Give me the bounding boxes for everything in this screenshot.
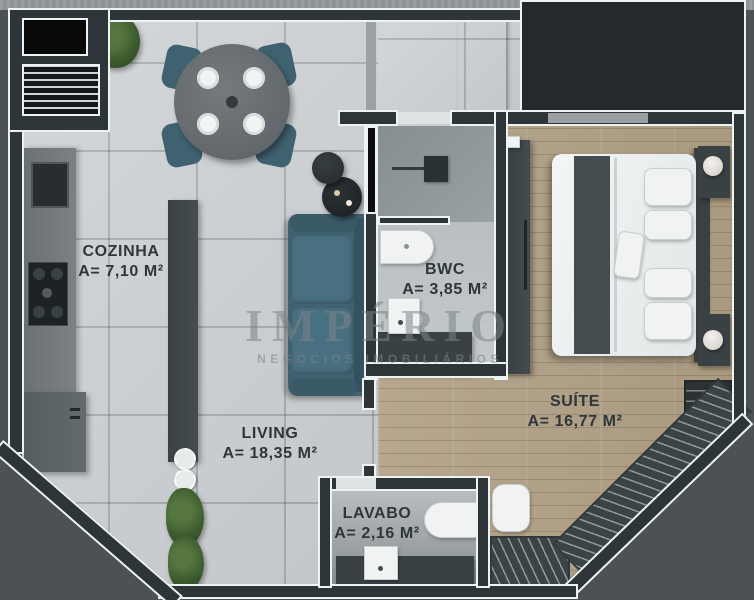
room-name: SUÍTE bbox=[500, 392, 650, 412]
sofa-cushion bbox=[292, 236, 354, 304]
wall-lavabo-right bbox=[476, 476, 490, 588]
service-cabinet bbox=[458, 16, 506, 110]
candle bbox=[346, 200, 352, 206]
place-setting-plate bbox=[197, 67, 219, 89]
lavabo-door-opening bbox=[336, 478, 376, 489]
wall-bottom bbox=[158, 584, 578, 599]
sofa-cushion bbox=[292, 308, 354, 374]
table-lamp bbox=[703, 330, 723, 350]
room-area: A= 18,35 M² bbox=[195, 444, 345, 464]
cooktop-burner bbox=[51, 306, 63, 318]
bwc-door-opening bbox=[398, 112, 450, 124]
bwc-sink bbox=[388, 298, 420, 334]
candle bbox=[334, 190, 340, 196]
room-area: A= 2,16 M² bbox=[302, 524, 452, 544]
cooktop-knob bbox=[42, 288, 52, 298]
entry-door-panel bbox=[22, 18, 88, 56]
floor-plant bbox=[168, 536, 204, 590]
fridge-handle bbox=[70, 408, 80, 411]
wall-hall-stub bbox=[338, 110, 398, 126]
wall-living-hall-stub bbox=[362, 378, 376, 410]
bed-pillow bbox=[644, 210, 692, 240]
floor-plan: IMPÉRIO NEGÓCIOS IMOBILIÁRIOS COZINHA A=… bbox=[0, 0, 754, 600]
room-label-bwc: BWC A= 3,85 M² bbox=[385, 260, 505, 300]
bed-pillow bbox=[644, 268, 692, 298]
coffee-table-small bbox=[312, 152, 344, 184]
pouf bbox=[492, 484, 530, 532]
room-label-lavabo: LAVABO A= 2,16 M² bbox=[302, 504, 452, 544]
fridge-handle bbox=[70, 416, 80, 419]
cooktop-burner bbox=[33, 306, 45, 318]
hall-divider-shadow bbox=[366, 12, 376, 112]
bwc-toilet-dot bbox=[404, 244, 409, 249]
adjacent-dark-block bbox=[520, 0, 746, 112]
room-label-living: LIVING A= 18,35 M² bbox=[195, 424, 345, 464]
room-label-suite: SUÍTE A= 16,77 M² bbox=[500, 392, 650, 432]
shower-partition bbox=[378, 216, 450, 225]
room-area: A= 16,77 M² bbox=[500, 412, 650, 432]
bed-pillow bbox=[644, 168, 692, 206]
bed-runner bbox=[574, 156, 610, 354]
room-area: A= 3,85 M² bbox=[385, 280, 505, 300]
bed-pillow bbox=[644, 302, 692, 340]
room-name: BWC bbox=[385, 260, 505, 280]
shower-fixture bbox=[424, 156, 448, 182]
place-setting-plate bbox=[243, 67, 265, 89]
decor-vase bbox=[174, 448, 196, 470]
shower-arm bbox=[392, 167, 424, 170]
wardrobe-handle bbox=[524, 220, 527, 290]
table-centerpiece bbox=[226, 96, 238, 108]
lavabo-sink bbox=[364, 546, 398, 580]
place-setting-plate bbox=[243, 113, 265, 135]
sofa-armrest bbox=[290, 214, 356, 232]
bwc-faucet bbox=[398, 320, 403, 325]
wall-bwc-suite bbox=[494, 110, 508, 380]
lavabo-counter bbox=[336, 556, 474, 584]
wall-window-slot bbox=[366, 126, 377, 214]
room-name: LAVABO bbox=[302, 504, 452, 524]
kitchen-sink bbox=[31, 162, 69, 208]
room-name: LIVING bbox=[195, 424, 345, 444]
tv-console bbox=[168, 200, 198, 462]
room-name: COZINHA bbox=[46, 242, 196, 262]
wall-bwc-bottom bbox=[364, 362, 508, 378]
place-setting-plate bbox=[197, 113, 219, 135]
lavabo-faucet bbox=[378, 566, 383, 571]
fridge bbox=[24, 392, 86, 472]
room-area: A= 7,10 M² bbox=[46, 262, 196, 282]
table-lamp bbox=[703, 156, 723, 176]
wall-right bbox=[732, 112, 746, 428]
room-label-cozinha: COZINHA A= 7,10 M² bbox=[46, 242, 196, 282]
suite-window bbox=[548, 113, 648, 123]
cooktop-burner bbox=[33, 268, 45, 280]
sofa-armrest bbox=[290, 378, 356, 396]
entry-grate bbox=[22, 64, 100, 116]
